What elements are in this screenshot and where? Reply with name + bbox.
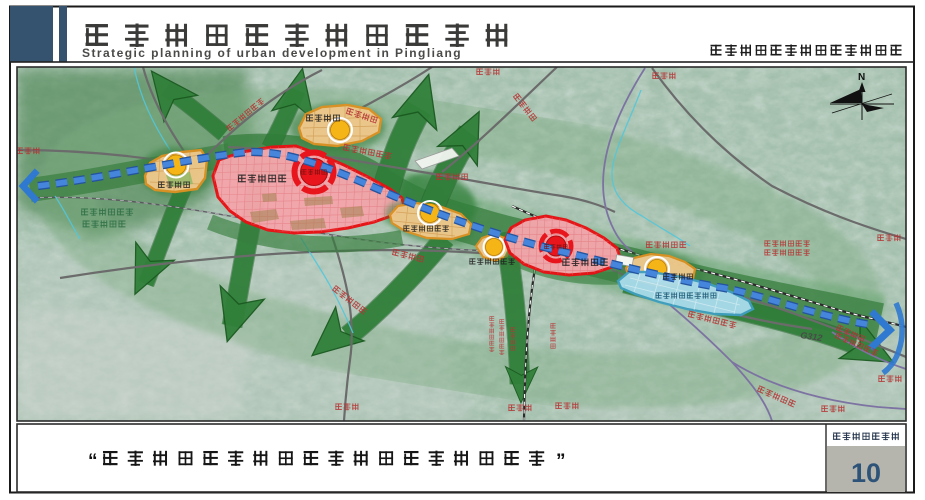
svg-text:N: N [858,72,865,83]
svg-text:“: “ [88,451,98,472]
svg-text:Strategic planning of urban de: Strategic planning of urban development … [82,46,462,60]
svg-text:”: ” [556,451,566,472]
svg-text:10: 10 [851,458,881,488]
